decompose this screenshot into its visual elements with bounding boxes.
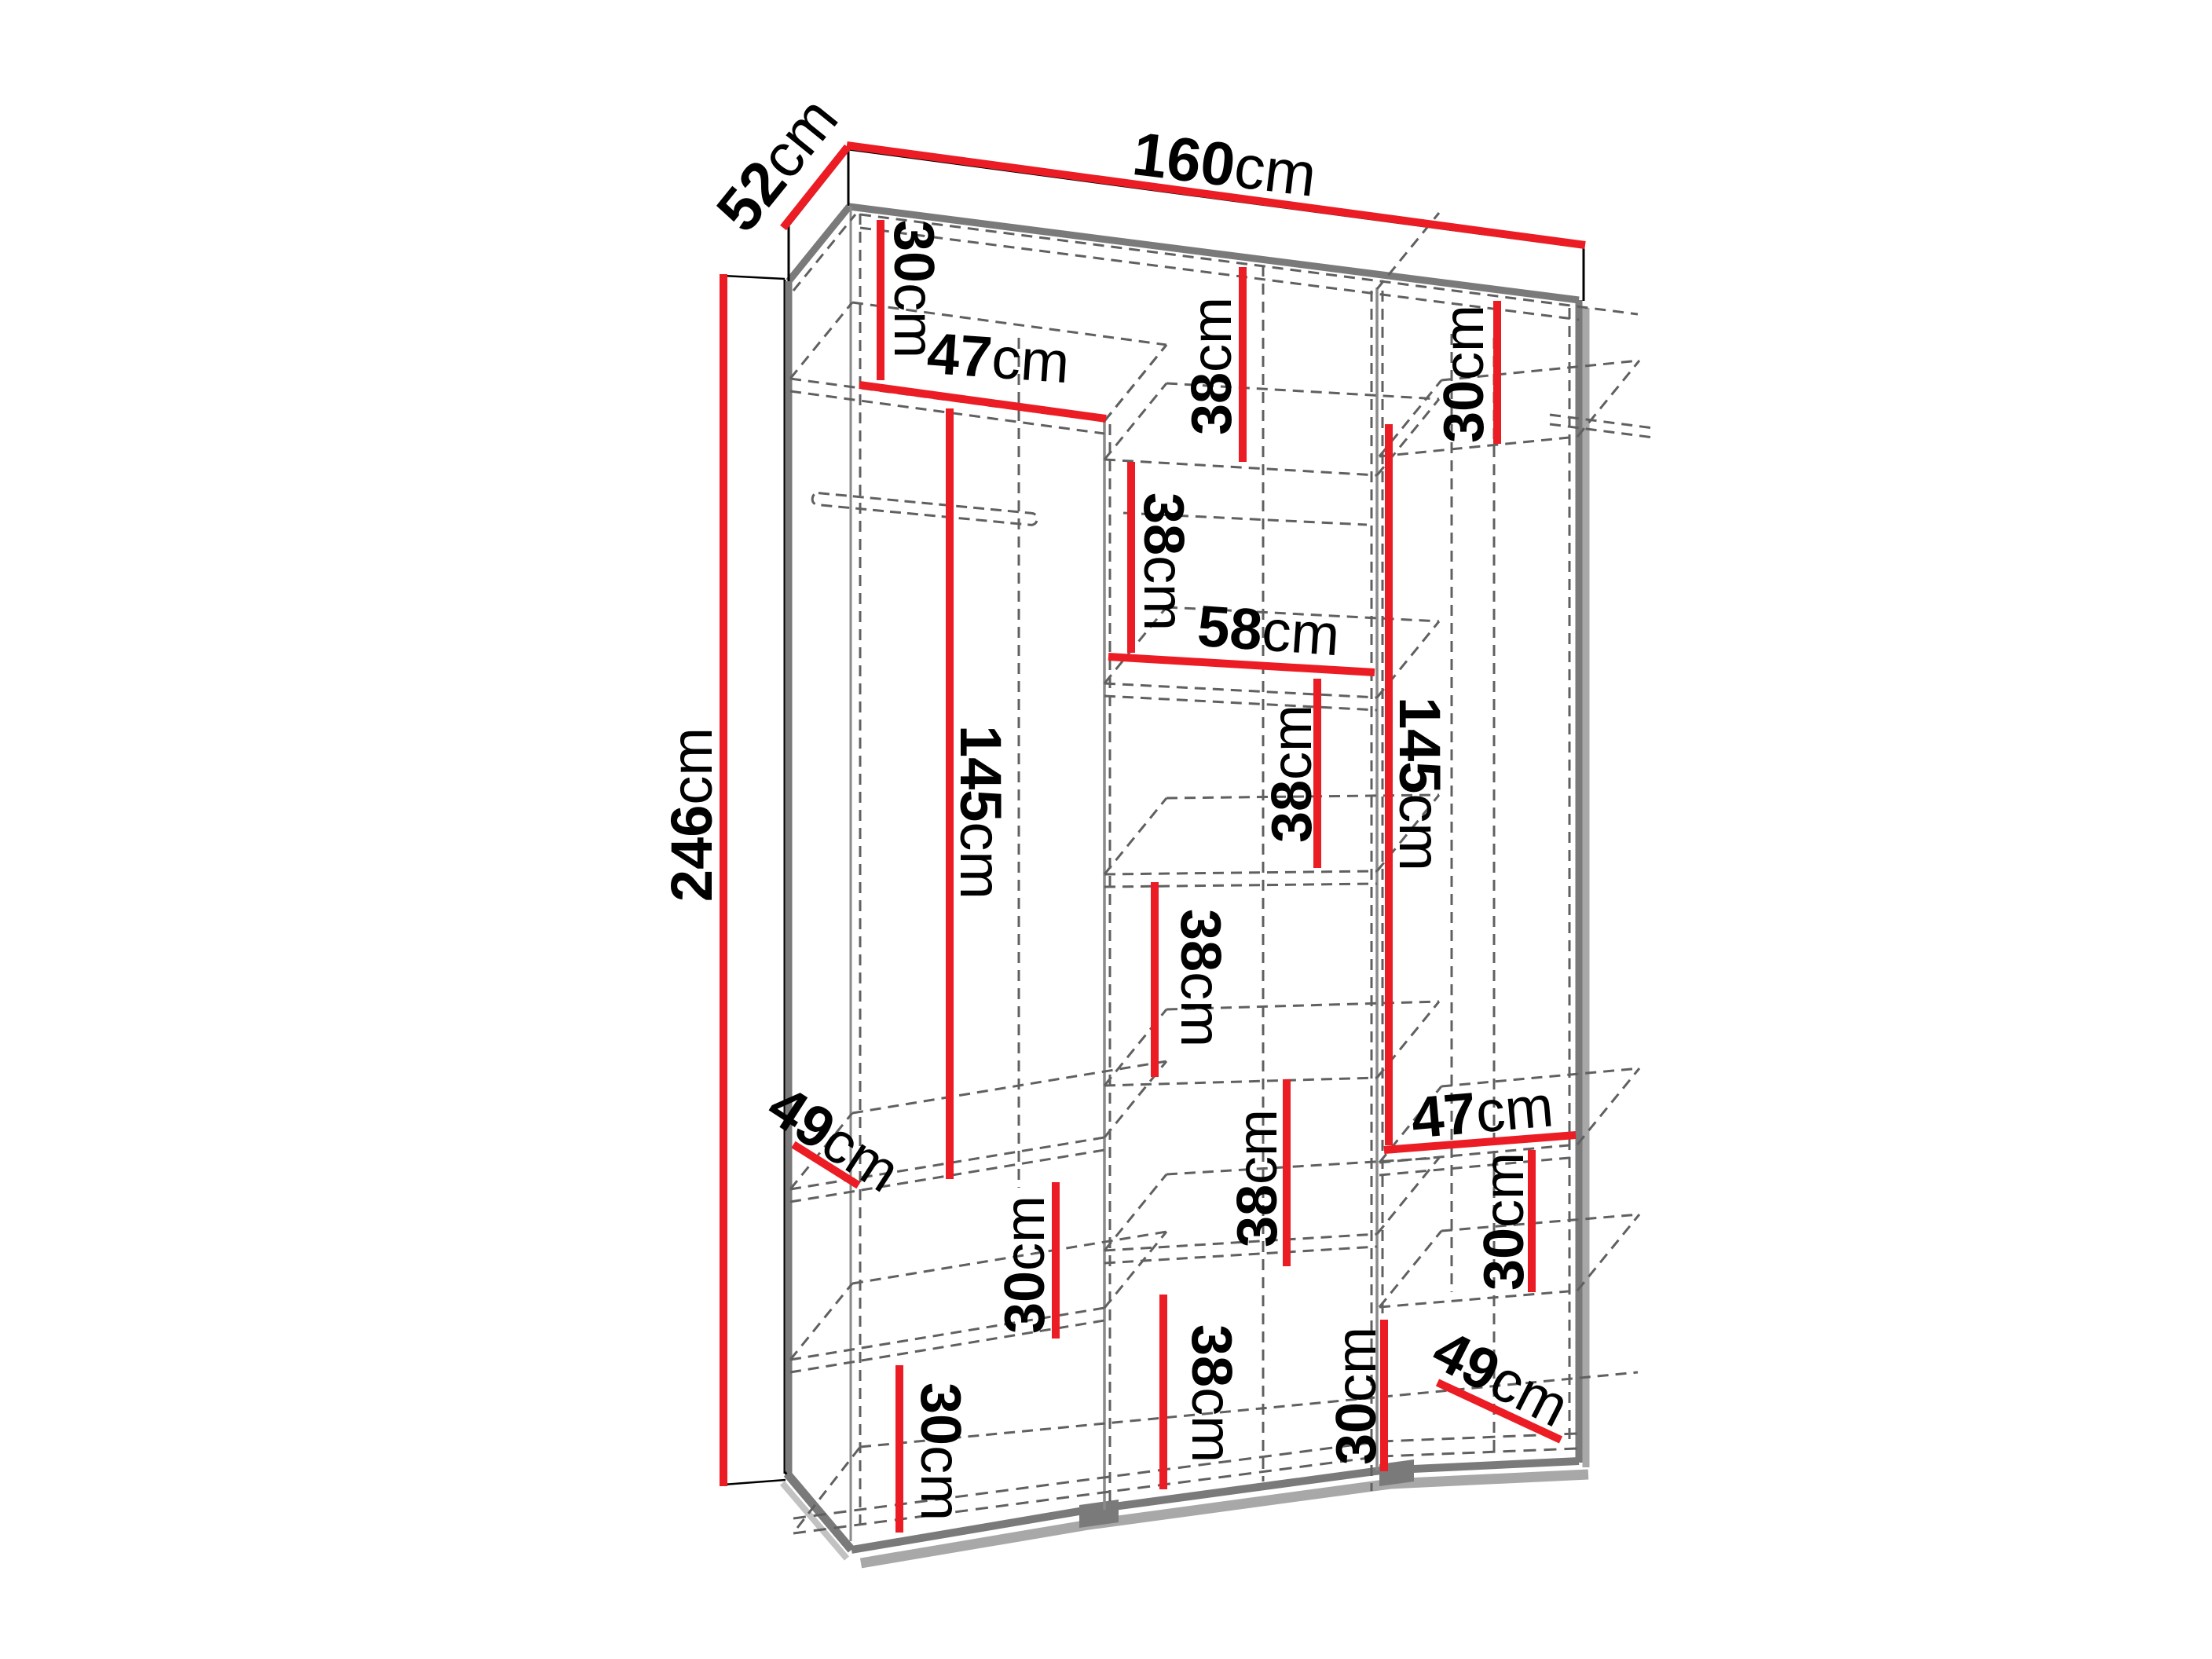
svg-text:47cm: 47cm: [925, 320, 1071, 394]
svg-text:145cm: 145cm: [949, 725, 1014, 899]
svg-text:246cm: 246cm: [659, 727, 724, 902]
svg-text:145cm: 145cm: [1388, 697, 1453, 871]
svg-text:47cm: 47cm: [1408, 1073, 1556, 1150]
svg-text:38cm: 38cm: [1226, 1109, 1289, 1247]
svg-text:30cm: 30cm: [909, 1382, 972, 1521]
svg-text:38cm: 38cm: [1180, 1324, 1243, 1463]
svg-text:38cm: 38cm: [1261, 705, 1324, 843]
svg-text:30cm: 30cm: [1473, 1152, 1536, 1291]
svg-text:38cm: 38cm: [1181, 297, 1243, 435]
svg-text:30cm: 30cm: [994, 1196, 1057, 1334]
svg-text:30cm: 30cm: [1325, 1327, 1388, 1465]
svg-text:30cm: 30cm: [1433, 305, 1496, 443]
svg-text:38cm: 38cm: [1169, 909, 1232, 1047]
svg-text:38cm: 38cm: [1132, 493, 1195, 631]
svg-text:58cm: 58cm: [1196, 592, 1342, 667]
